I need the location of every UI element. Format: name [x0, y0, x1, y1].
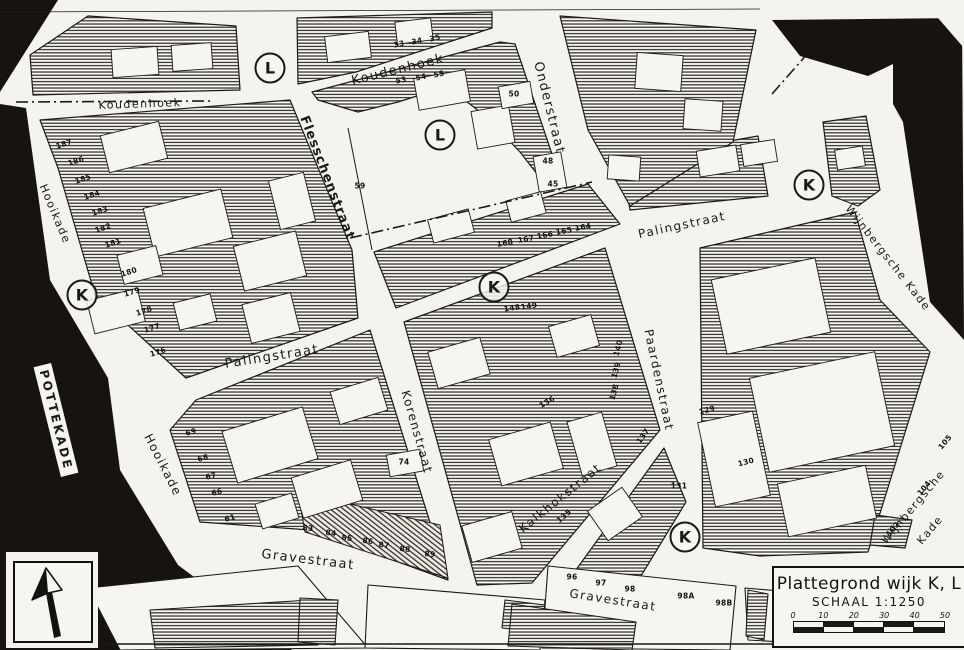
scale-tick: 50	[940, 611, 950, 620]
house-number: 129	[698, 404, 716, 417]
house-number: 139	[610, 361, 623, 379]
house-number: 184	[83, 188, 102, 202]
district-marker-l: L	[425, 120, 456, 151]
house-number: 176	[149, 345, 168, 359]
house-number: 66	[211, 486, 224, 498]
scale-segment	[824, 627, 854, 632]
house-number: 86	[362, 536, 374, 546]
scale-tick: 40	[910, 611, 920, 620]
house-number: 67	[205, 470, 218, 482]
house-number: 187	[55, 137, 74, 151]
house-number: 69	[185, 426, 198, 438]
street-label-hooikade: Hooikade	[141, 431, 184, 498]
district-marker-k: K	[479, 272, 510, 303]
scale-tick: 30	[879, 611, 889, 620]
house-number: 97	[595, 579, 606, 588]
house-number: 105	[936, 433, 954, 451]
house-number: 149	[520, 300, 538, 311]
house-number: 135	[555, 507, 573, 525]
scale-bar: 01020304050	[793, 611, 945, 633]
house-number: 178	[135, 304, 154, 318]
house-number: 138	[608, 383, 621, 401]
scale-tick-labels: 01020304050	[793, 611, 945, 621]
scale-segment	[884, 627, 914, 632]
house-number: 148	[503, 302, 521, 313]
house-number: 48	[542, 157, 553, 166]
street-label-gravestraat: Gravestraat	[261, 547, 356, 573]
house-number: 136	[538, 394, 557, 410]
street-label-palingstraat: Palingstraat	[637, 209, 727, 241]
house-number: 177	[143, 321, 162, 335]
house-number: 61	[224, 512, 237, 524]
house-number: 164	[574, 221, 592, 233]
district-marker-k: K	[67, 280, 98, 311]
house-number: 53	[395, 74, 408, 85]
scale-segment	[794, 627, 824, 632]
title-box: Plattegrond wijk K, L SCHAAL 1:1250 0102…	[772, 566, 964, 648]
street-label-flesschenstraat: Flesschenstraat	[296, 114, 357, 242]
house-number: 55	[433, 68, 446, 79]
street-label-onderstraat: Onderstraat	[530, 60, 567, 156]
street-label-palingstraat: Palingstraat	[224, 342, 320, 372]
house-number: 45	[547, 180, 558, 189]
house-number: 183	[91, 204, 110, 218]
house-number: 35	[429, 32, 442, 43]
house-number: 167	[517, 233, 535, 245]
street-label-koudenhoek: Koudenhoek	[98, 96, 181, 112]
house-number: 59	[354, 182, 365, 191]
house-number: 98B	[715, 599, 732, 608]
scale-label: SCHAAL 1:1250	[774, 595, 964, 609]
house-number: 85	[341, 533, 353, 543]
house-number: 54	[415, 71, 428, 82]
scale-tick: 0	[790, 611, 795, 620]
district-marker-l: L	[255, 53, 286, 84]
house-number: 68	[197, 452, 210, 464]
scale-tick: 10	[818, 611, 828, 620]
house-number: 89	[424, 549, 436, 559]
house-number: 96	[566, 573, 577, 582]
house-number: 88	[399, 544, 411, 554]
house-number: 34	[411, 35, 424, 46]
house-number: 98A	[677, 592, 694, 601]
district-marker-k: K	[670, 522, 701, 553]
map-title: Plattegrond wijk K, L	[774, 574, 964, 594]
house-number: 140	[612, 339, 625, 357]
street-label-wijnbergsche-kade: Wijnbergsche Kade	[843, 202, 934, 313]
scale-bar-segments	[793, 621, 945, 633]
house-number: 137	[635, 427, 652, 446]
house-number: 165	[555, 225, 573, 237]
scale-segment	[914, 627, 944, 632]
house-number: 98	[624, 585, 635, 594]
house-number: 185	[74, 172, 93, 186]
house-number: 50	[508, 90, 519, 99]
house-number: 180	[120, 265, 139, 279]
district-marker-k: K	[794, 170, 825, 201]
house-number: 166	[536, 229, 554, 241]
house-number: 87	[378, 540, 390, 550]
street-label-pottekade: POTTEKADE	[34, 363, 79, 477]
scale-segment	[854, 627, 884, 632]
house-number: 33	[393, 38, 406, 49]
house-number: 83	[302, 523, 314, 533]
house-number: 181	[104, 236, 123, 250]
scale-tick: 20	[849, 611, 859, 620]
house-number: 130	[737, 456, 755, 469]
house-number: 74	[398, 458, 409, 467]
street-label-gravestraat: Gravestraat	[569, 586, 658, 614]
house-number: 131	[671, 482, 688, 491]
street-label-kade: Kade	[914, 513, 946, 547]
house-number: 179	[123, 285, 142, 299]
house-number: 84	[325, 528, 337, 538]
house-number: 186	[67, 154, 86, 168]
house-number: 182	[94, 221, 113, 235]
street-label-paardenstraat: Paardenstraat	[641, 328, 676, 432]
house-number: 168	[496, 237, 514, 249]
street-label-hooikade: Hooikade	[37, 182, 74, 246]
map-annotations: KoudenhoekKoudenhoekOnderstraatFlesschen…	[0, 0, 964, 650]
district-map: KoudenhoekKoudenhoekOnderstraatFlesschen…	[0, 0, 964, 650]
